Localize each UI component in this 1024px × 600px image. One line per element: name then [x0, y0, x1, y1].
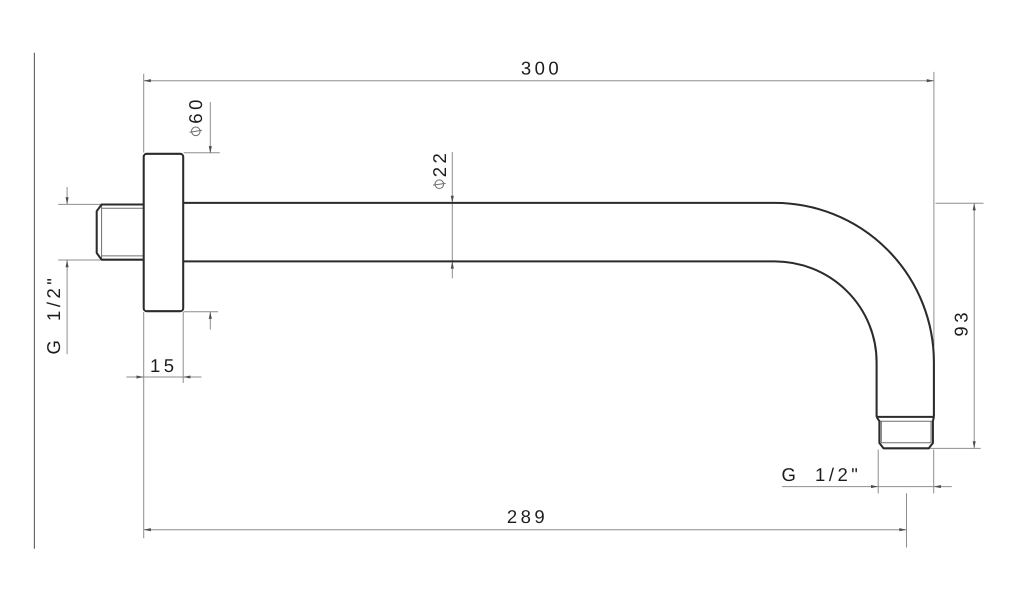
svg-text:60: 60 [185, 96, 206, 124]
svg-text:300: 300 [521, 58, 562, 79]
svg-text:22: 22 [429, 150, 450, 178]
svg-text:G 1/2": G 1/2" [43, 275, 64, 355]
svg-text:15: 15 [150, 355, 178, 376]
svg-text:G 1/2": G 1/2" [782, 464, 862, 485]
svg-text:289: 289 [507, 506, 548, 527]
svg-text:93: 93 [951, 309, 972, 337]
